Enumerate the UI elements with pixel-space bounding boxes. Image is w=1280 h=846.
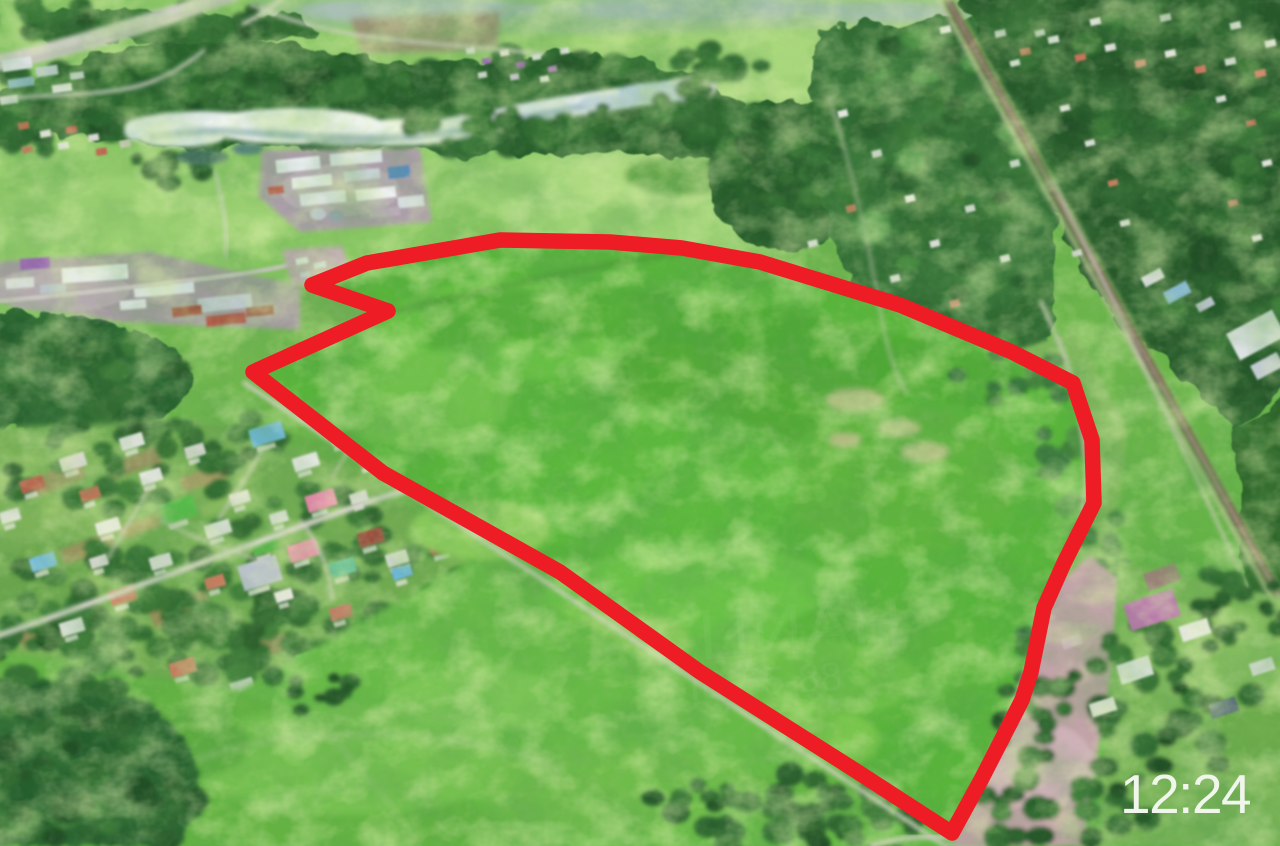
svg-text:12:24: 12:24: [1120, 763, 1250, 825]
